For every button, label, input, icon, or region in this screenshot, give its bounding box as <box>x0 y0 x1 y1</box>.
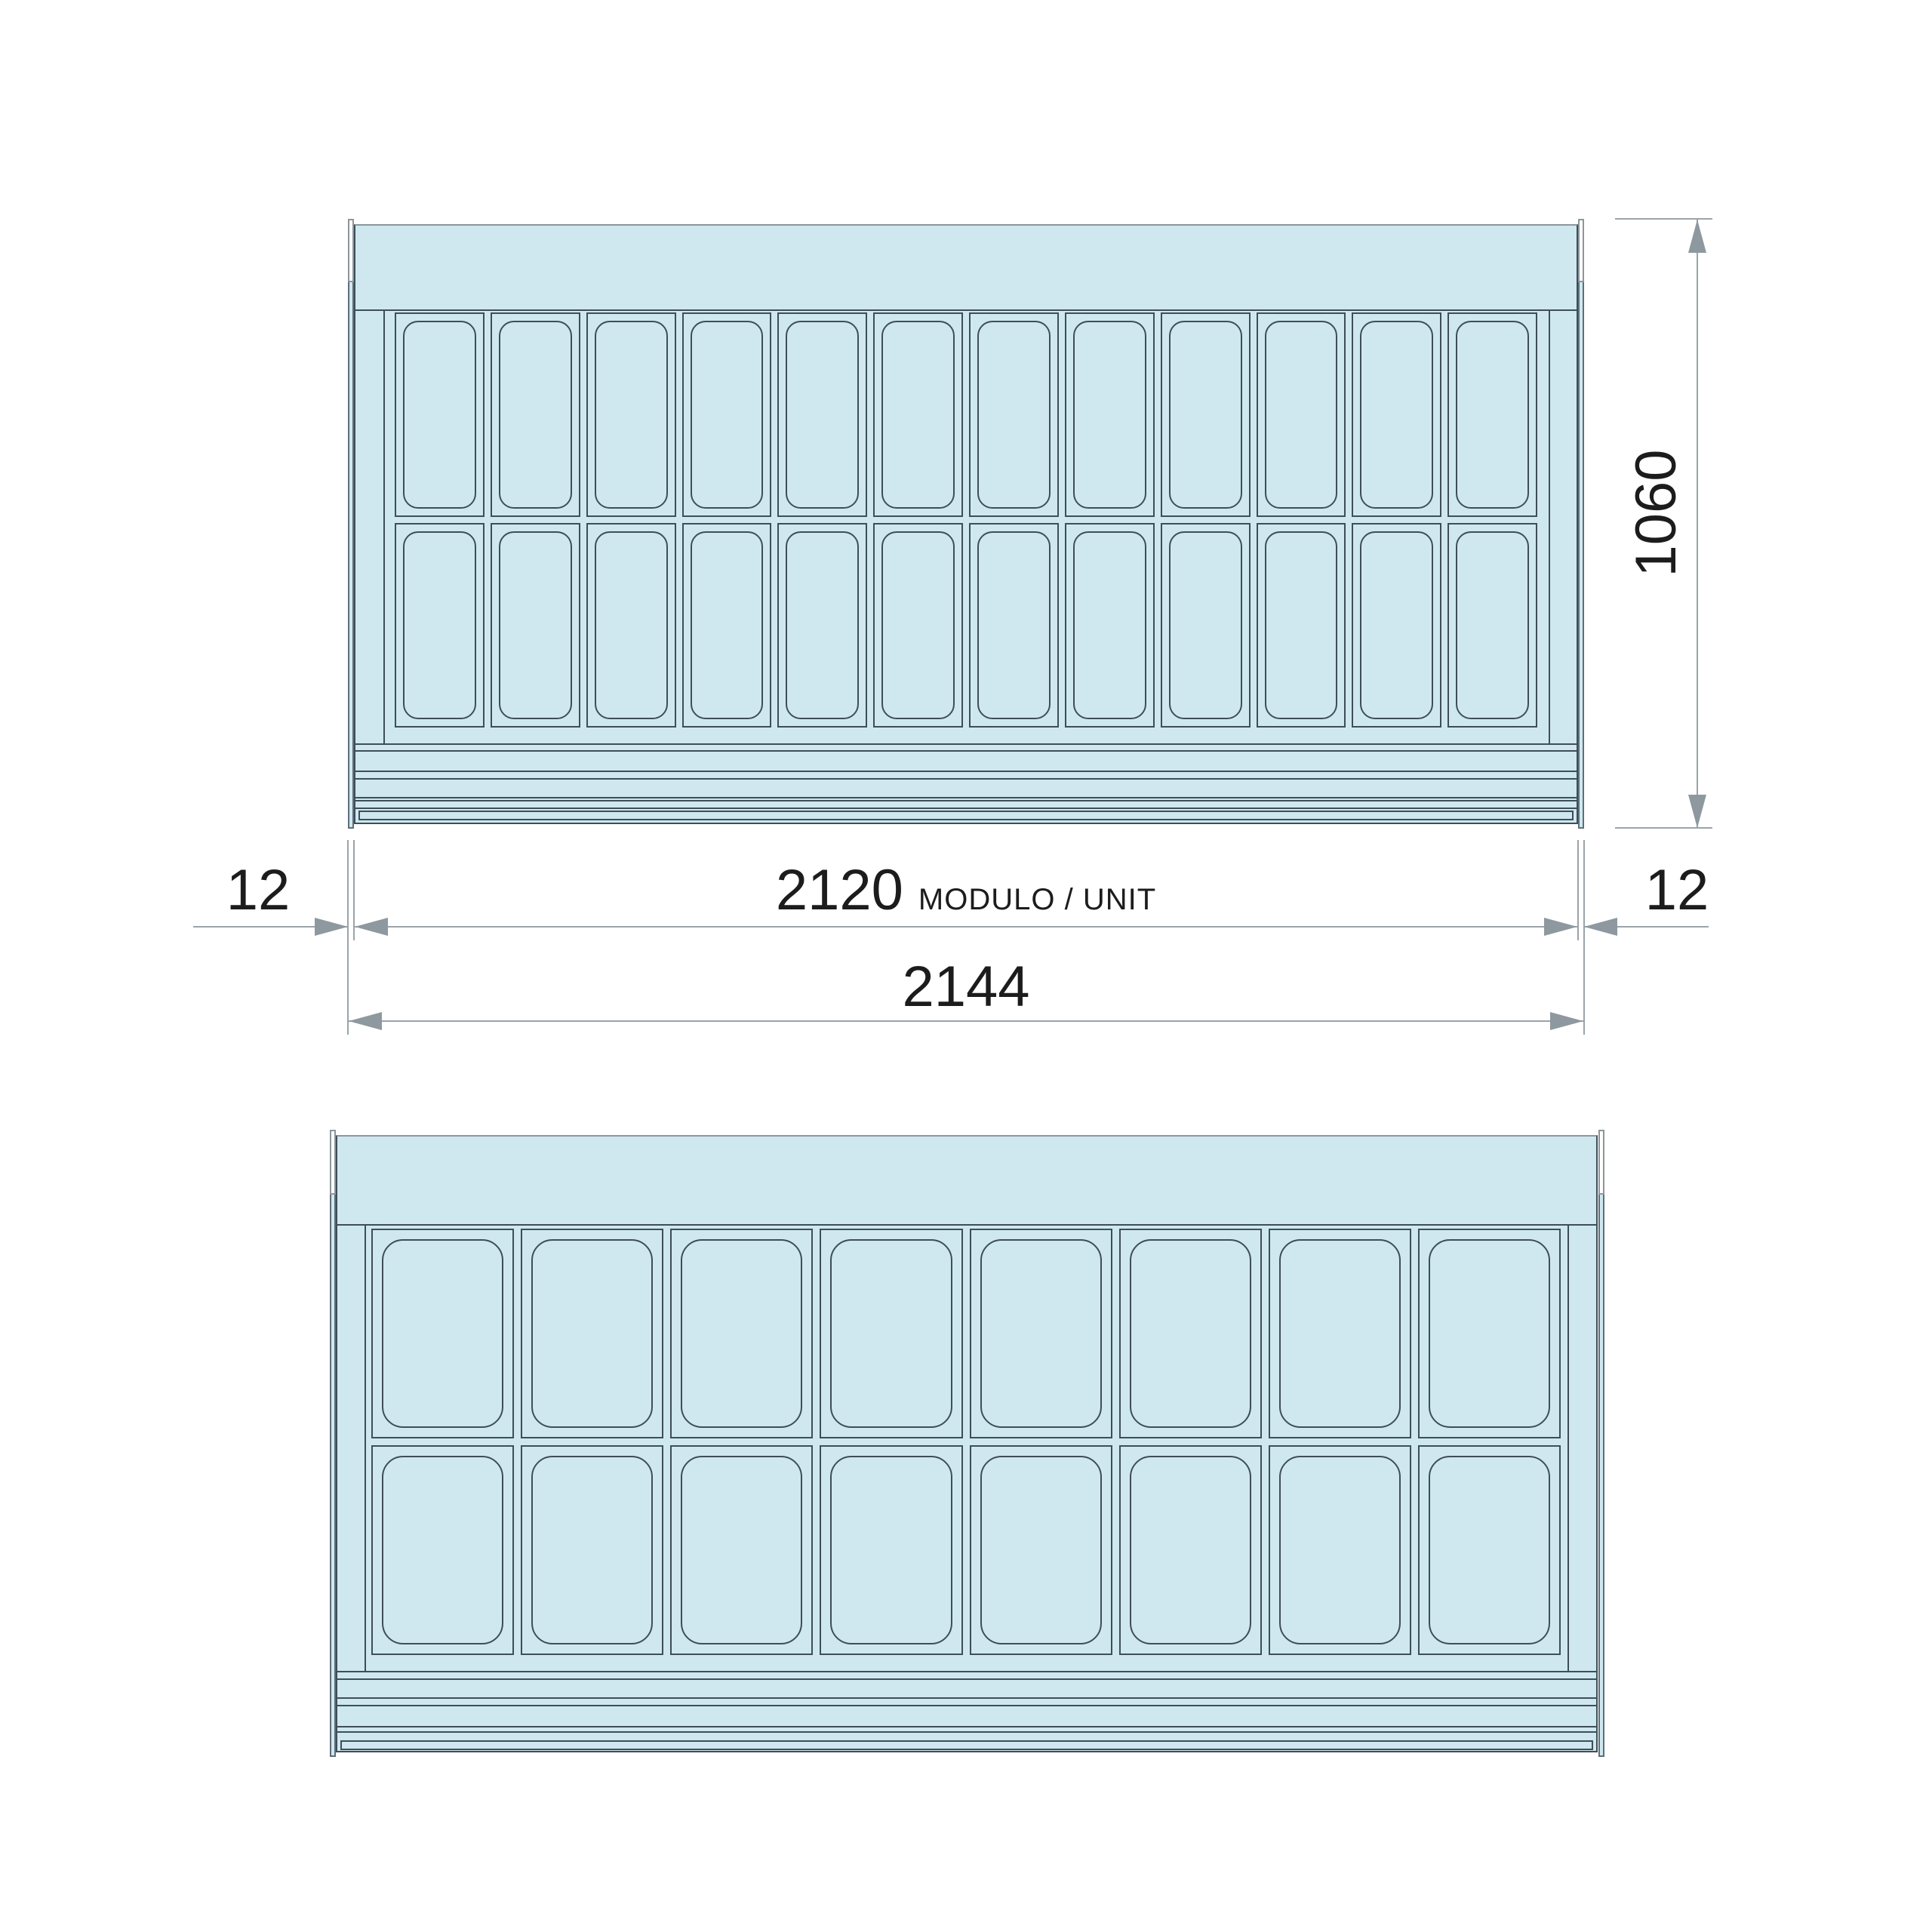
dim-label-module-width: 2120 MODULO / UNIT <box>664 860 1268 921</box>
pan-frame <box>873 523 963 728</box>
gastronorm-pan <box>1169 321 1242 509</box>
dim-label-overall-width: 2144 <box>815 957 1117 1017</box>
pan-frame <box>777 523 867 728</box>
gastronorm-pan <box>1279 1239 1401 1428</box>
gastronorm-pan <box>786 321 859 509</box>
pan-frame <box>970 1229 1112 1438</box>
dim-line-height <box>1697 219 1698 829</box>
technical-drawing-canvas: 2120 MODULO / UNIT 12 12 2144 1060 <box>0 0 1932 1932</box>
gastronorm-pan <box>980 1239 1102 1428</box>
left-side-wall-tab <box>348 219 354 282</box>
gastronorm-pan <box>681 1456 802 1644</box>
gastronorm-pan <box>681 1239 802 1428</box>
gastronorm-pan <box>1130 1456 1251 1644</box>
gastronorm-pan <box>1360 531 1433 719</box>
left-side-wall <box>348 249 354 829</box>
gastronorm-pan <box>531 1456 653 1644</box>
gastronorm-pan <box>499 531 572 719</box>
pan-frame <box>586 312 676 517</box>
pan-frame <box>1418 1229 1561 1438</box>
gastronorm-pan <box>881 321 955 509</box>
canopy-band <box>337 1137 1596 1226</box>
bumper-line <box>337 1731 1596 1733</box>
dim-value-module-width: 2120 <box>776 860 903 921</box>
bumper-line <box>355 808 1577 809</box>
extension-line <box>347 840 349 1035</box>
gastronorm-pan <box>595 321 668 509</box>
gastronorm-pan <box>1456 531 1529 719</box>
pan-frame <box>670 1229 813 1438</box>
pan-grid-8 <box>371 1229 1561 1655</box>
pan-zone-left-line <box>383 311 385 743</box>
pan-frame <box>1418 1445 1561 1655</box>
pan-frame <box>371 1445 514 1655</box>
pan-frame <box>395 312 485 517</box>
gastronorm-pan <box>881 531 955 719</box>
gastronorm-pan <box>830 1239 952 1428</box>
bumper-line <box>355 771 1577 772</box>
bumper-line <box>355 778 1577 780</box>
case-body <box>354 224 1578 824</box>
gastronorm-pan <box>1429 1239 1550 1428</box>
gastronorm-pan <box>1265 321 1338 509</box>
pan-frame <box>1447 523 1537 728</box>
pan-frame <box>1119 1229 1262 1438</box>
pan-frame <box>521 1229 663 1438</box>
gastronorm-pan <box>691 531 764 719</box>
canopy-band <box>355 226 1577 311</box>
gastronorm-pan <box>382 1239 503 1428</box>
right-side-wall-tab <box>1578 219 1584 282</box>
pan-frame <box>682 523 772 728</box>
gastronorm-pan <box>977 321 1051 509</box>
bumper-line <box>337 1705 1596 1706</box>
bumper-line <box>337 1726 1596 1727</box>
dim-line-module-width <box>354 926 1578 928</box>
dim-label-right-side: 12 <box>1617 860 1737 921</box>
pan-area <box>337 1226 1596 1671</box>
pan-frame <box>1447 312 1537 517</box>
right-side-wall <box>1598 1162 1604 1757</box>
gastronorm-pan <box>1169 531 1242 719</box>
right-side-wall-tab <box>1598 1130 1604 1195</box>
pan-frame <box>873 312 963 517</box>
pan-frame <box>1065 312 1155 517</box>
case-body <box>336 1135 1598 1752</box>
right-side-wall <box>1578 249 1584 829</box>
pan-frame <box>586 523 676 728</box>
pan-zone-right-line <box>1549 311 1550 743</box>
front-bumper <box>355 743 1577 826</box>
pan-frame <box>969 312 1059 517</box>
pan-frame <box>1269 1229 1411 1438</box>
arrowhead-left <box>349 1012 382 1030</box>
pan-zone-left-line <box>365 1226 366 1671</box>
pan-frame <box>1352 312 1441 517</box>
bumper-line <box>337 1697 1596 1699</box>
gastronorm-pan <box>1265 531 1338 719</box>
bumper-line <box>355 800 1577 801</box>
gastronorm-pan <box>1130 1239 1251 1428</box>
pan-frame <box>491 312 580 517</box>
pan-frame <box>395 523 485 728</box>
gastronorm-pan <box>595 531 668 719</box>
pan-frame <box>1257 523 1346 728</box>
gastronorm-pan <box>980 1456 1102 1644</box>
pan-frame <box>1119 1445 1262 1655</box>
gastronorm-pan <box>691 321 764 509</box>
dim-label-left-side: 12 <box>198 860 318 921</box>
bumper-line <box>355 797 1577 798</box>
arrowhead-down <box>1688 795 1706 828</box>
gastronorm-pan <box>499 321 572 509</box>
arrowhead-right <box>315 918 348 936</box>
gastronorm-pan <box>382 1456 503 1644</box>
arrowhead-up <box>1688 220 1706 253</box>
pan-frame <box>777 312 867 517</box>
pan-frame <box>1352 523 1441 728</box>
gastronorm-pan <box>977 531 1051 719</box>
gastronorm-pan <box>1360 321 1433 509</box>
pan-area <box>355 311 1577 743</box>
bumper-line <box>355 750 1577 752</box>
pan-frame <box>1161 523 1251 728</box>
left-side-wall <box>330 1162 336 1757</box>
pan-zone-right-line <box>1567 1226 1569 1671</box>
pan-frame <box>970 1445 1112 1655</box>
kick-plate <box>358 811 1574 820</box>
pan-frame <box>521 1445 663 1655</box>
gastronorm-pan <box>1279 1456 1401 1644</box>
extension-line <box>1583 840 1585 1035</box>
arrowhead-left <box>1584 918 1617 936</box>
pan-frame <box>491 523 580 728</box>
pan-frame <box>969 523 1059 728</box>
arrowhead-left <box>355 918 388 936</box>
gastronorm-pan <box>1429 1456 1550 1644</box>
gastronorm-pan <box>403 321 476 509</box>
pan-frame <box>1269 1445 1411 1655</box>
dim-label-height: 1060 <box>1626 430 1687 596</box>
left-side-wall-tab <box>330 1130 336 1195</box>
pan-frame <box>670 1445 813 1655</box>
arrowhead-right <box>1550 1012 1583 1030</box>
pan-grid-12 <box>395 312 1537 728</box>
front-bumper <box>337 1671 1596 1754</box>
pan-frame <box>1257 312 1346 517</box>
pan-frame <box>1065 523 1155 728</box>
kick-plate <box>340 1740 1593 1750</box>
gastronorm-pan <box>786 531 859 719</box>
bumper-line <box>337 1678 1596 1680</box>
pan-frame <box>682 312 772 517</box>
pan-frame <box>820 1445 962 1655</box>
gastronorm-pan <box>1073 321 1146 509</box>
gastronorm-pan <box>1073 531 1146 719</box>
gastronorm-pan <box>1456 321 1529 509</box>
gastronorm-pan <box>403 531 476 719</box>
arrowhead-right <box>1544 918 1577 936</box>
pan-frame <box>1161 312 1251 517</box>
dim-line-overall-width <box>348 1020 1584 1022</box>
gastronorm-pan <box>531 1239 653 1428</box>
dim-suffix-module-width: MODULO / UNIT <box>918 883 1156 916</box>
pan-frame <box>371 1229 514 1438</box>
pan-frame <box>820 1229 962 1438</box>
gastronorm-pan <box>830 1456 952 1644</box>
